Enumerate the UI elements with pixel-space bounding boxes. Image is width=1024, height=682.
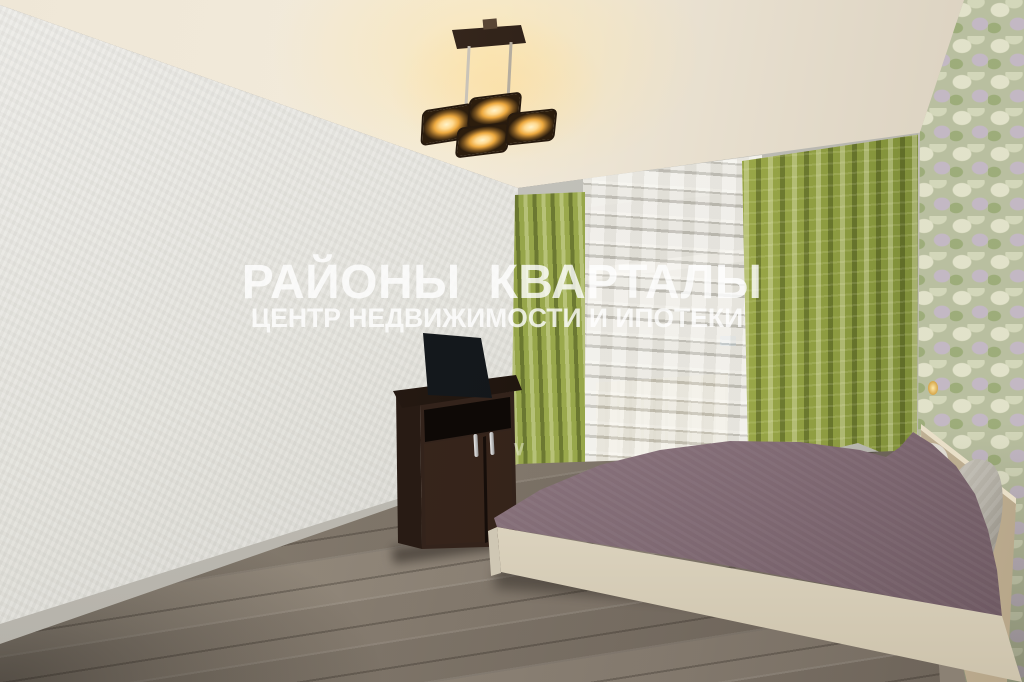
watermark-title: РАЙОНЫ КВАРТАЛЫ: [242, 259, 763, 307]
lamp-mount-nub: [483, 18, 498, 29]
listing-photo: РАЙОНЫ КВАРТАЛЫ ЦЕНТР НЕДВИЖИМОСТИ И ИПО…: [0, 0, 1024, 682]
lamp-shade-icon: [504, 108, 557, 146]
watermark-logo-mark: ∨: [512, 436, 527, 461]
watermark-subtitle: ЦЕНТР НЕДВИЖИМОСТИ И ИПОТЕКИ: [251, 305, 743, 332]
wall-light-reflection: [928, 381, 938, 395]
